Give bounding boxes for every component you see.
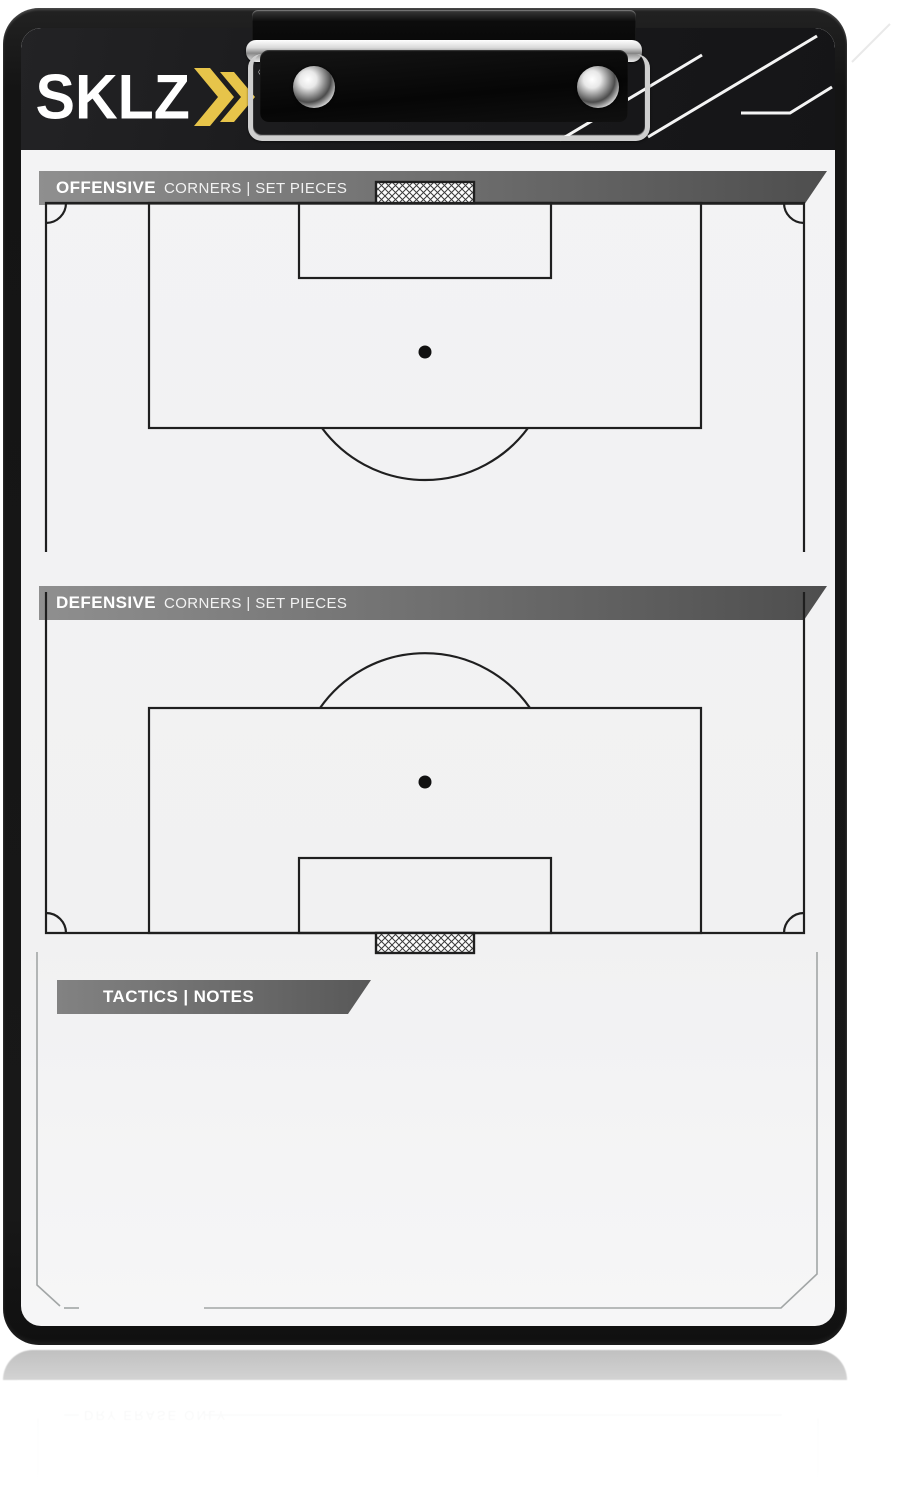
banner-defensive: DEFENSIVE CORNERS | SET PIECES bbox=[39, 586, 827, 620]
clip-rivet-left bbox=[293, 66, 335, 108]
clipboard-frame: SKLZ ® OFFENSIVE CORNERS | SET PIECES bbox=[3, 8, 847, 1345]
whiteboard-surface: SKLZ ® OFFENSIVE CORNERS | SET PIECES bbox=[21, 28, 835, 1326]
frame-corner-highlight bbox=[852, 24, 890, 62]
sklz-logo: SKLZ ® bbox=[37, 64, 264, 131]
brand-wordmark: SKLZ bbox=[35, 66, 189, 129]
banner-offensive-subtitle: CORNERS | SET PIECES bbox=[164, 180, 347, 197]
product-photo: SKLZ ® OFFENSIVE CORNERS | SET PIECES bbox=[0, 0, 920, 1500]
clipboard-clip bbox=[238, 2, 650, 142]
banner-offensive: OFFENSIVE CORNERS | SET PIECES bbox=[39, 171, 827, 205]
banner-defensive-subtitle: CORNERS | SET PIECES bbox=[164, 595, 347, 612]
reflection-fade bbox=[0, 1345, 920, 1500]
clip-face-plate bbox=[260, 50, 628, 122]
banner-defensive-title: DEFENSIVE bbox=[56, 593, 156, 613]
banner-tactics-title: TACTICS | NOTES bbox=[103, 987, 254, 1007]
clip-rivet-right bbox=[577, 66, 619, 108]
banner-offensive-title: OFFENSIVE bbox=[56, 178, 156, 198]
banner-tactics: TACTICS | NOTES bbox=[57, 980, 371, 1014]
